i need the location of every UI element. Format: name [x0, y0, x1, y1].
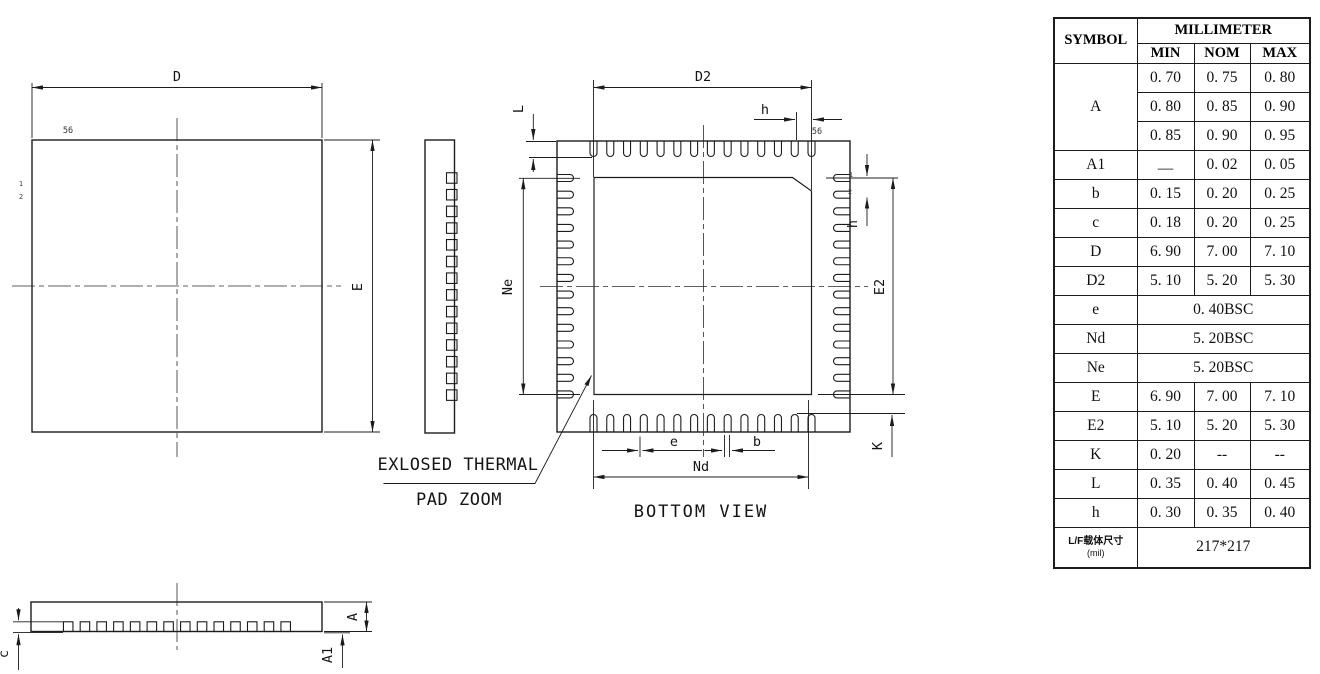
- table-cell: E2: [1054, 411, 1137, 440]
- lead-pad: [447, 206, 458, 217]
- table-cell: 0. 25: [1250, 208, 1310, 237]
- exposed-thermal-pad: [594, 178, 812, 395]
- pad-bottom: [774, 415, 781, 432]
- table-cell: 0. 90: [1194, 121, 1250, 150]
- table-cell: 6. 90: [1137, 382, 1194, 411]
- lead-pad: [447, 323, 458, 334]
- table-cell: c: [1054, 208, 1137, 237]
- table-cell: D: [1054, 237, 1137, 266]
- table-cell: 0. 85: [1194, 92, 1250, 121]
- pad-bottom: [607, 415, 614, 432]
- pad-bottom: [808, 415, 815, 432]
- pad-right: [834, 308, 850, 315]
- dim-label-Ne: Ne: [500, 279, 516, 295]
- table-cell: 0. 20: [1137, 440, 1194, 469]
- table-cell: 5. 10: [1137, 266, 1194, 295]
- table-row: E6. 907. 007. 10: [1054, 382, 1310, 411]
- table-cell: e: [1054, 295, 1137, 324]
- lead-pad: [247, 622, 256, 632]
- table-row: e0. 40BSC: [1054, 295, 1310, 324]
- pad-bottom: [674, 415, 681, 432]
- table-cell: 0. 95: [1250, 121, 1310, 150]
- lead-pad: [447, 356, 458, 367]
- pad-left: [558, 258, 574, 265]
- pad-top: [657, 142, 664, 157]
- pad-top: [774, 142, 781, 157]
- lead-pad: [447, 240, 458, 251]
- table-cell: 7. 00: [1194, 237, 1250, 266]
- pad-right: [834, 324, 850, 331]
- lead-pad: [231, 622, 241, 632]
- dim-label-h-right: h: [845, 220, 861, 228]
- pad-right: [834, 358, 850, 365]
- bottom-view-caption: BOTTOM VIEW: [634, 502, 769, 522]
- callout-text-line1: EXLOSED THERMAL: [377, 455, 538, 475]
- table-cell: --: [1250, 440, 1310, 469]
- table-cell: 0. 02: [1194, 150, 1250, 179]
- dim-label-Nd: Nd: [693, 459, 709, 475]
- pin-1-label: 1: [19, 180, 23, 188]
- pad-top: [741, 142, 748, 157]
- table-cell: 7. 00: [1194, 382, 1250, 411]
- table-cell: 6. 90: [1137, 237, 1194, 266]
- pad-right: [834, 341, 850, 348]
- table-cell: 5. 20: [1194, 266, 1250, 295]
- callout-text-line2: PAD ZOOM: [416, 490, 502, 510]
- table-cell: D2: [1054, 266, 1137, 295]
- table-cell: 0. 80: [1137, 92, 1194, 121]
- lead-pad: [63, 622, 72, 632]
- table-row: K0. 20----: [1054, 440, 1310, 469]
- dim-label-e: e: [670, 434, 678, 450]
- table-cell: 0. 25: [1250, 179, 1310, 208]
- lead-pad: [447, 256, 458, 267]
- pad-bottom: [791, 415, 798, 432]
- pin-2-label: 2: [19, 193, 23, 201]
- table-cell: 5. 20BSC: [1137, 353, 1310, 382]
- table-cell: 0. 40BSC: [1137, 295, 1310, 324]
- table-row: E25. 105. 205. 30: [1054, 411, 1310, 440]
- profile-body-outline: [31, 602, 322, 632]
- lead-pad: [97, 622, 107, 632]
- pad-top: [791, 142, 798, 157]
- table-cell: h: [1054, 498, 1137, 527]
- top-view: D E 56 1 2: [12, 69, 380, 457]
- lead-pad: [447, 223, 458, 234]
- table-cell: Ne: [1054, 353, 1137, 382]
- pad-right: [834, 374, 850, 381]
- pad-top: [724, 142, 731, 157]
- table-cell: K: [1054, 440, 1137, 469]
- dim-label-L: L: [511, 105, 527, 113]
- table-header-nom: NOM: [1194, 43, 1250, 63]
- strip-body-outline: [425, 140, 455, 433]
- pad-bottom: [741, 415, 748, 432]
- table-cell: A: [1054, 63, 1137, 150]
- pad-left: [558, 241, 574, 248]
- lead-pad: [181, 622, 191, 632]
- dim-label-A: A: [345, 613, 361, 621]
- table-header-row: SYMBOL MILLIMETER: [1054, 18, 1310, 43]
- table-row: L0. 350. 400. 45: [1054, 469, 1310, 498]
- pad-left: [558, 291, 574, 298]
- lead-pad: [447, 340, 458, 351]
- dim-label-D2: D2: [695, 69, 711, 85]
- pin-56-label: 56: [63, 126, 73, 136]
- table-cell: 5. 20: [1194, 411, 1250, 440]
- lead-pad: [281, 622, 291, 632]
- table-cell: 0. 40: [1194, 469, 1250, 498]
- pad-left: [558, 358, 574, 365]
- table-row: h0. 300. 350. 40: [1054, 498, 1310, 527]
- pad-right: [834, 274, 850, 281]
- table-cell: —: [1137, 150, 1194, 179]
- pad-right: [834, 208, 850, 215]
- table-cell: 0. 05: [1250, 150, 1310, 179]
- pad-right: [834, 291, 850, 298]
- lead-pad: [130, 622, 140, 632]
- table-cell: 7. 10: [1250, 382, 1310, 411]
- table-cell: 0. 35: [1194, 498, 1250, 527]
- table-cell: 0. 80: [1250, 63, 1310, 92]
- pad-left: [558, 224, 574, 231]
- table-cell: E: [1054, 382, 1137, 411]
- pad-top: [640, 142, 647, 157]
- pad-bottom: [707, 415, 714, 432]
- lead-pad: [447, 290, 458, 301]
- table-header-symbol: SYMBOL: [1054, 18, 1137, 63]
- lead-pad: [447, 189, 458, 200]
- pad-left: [558, 324, 574, 331]
- pad-bottom: [657, 415, 664, 432]
- callout-leader-line: [535, 376, 592, 484]
- table-cell: 0. 90: [1250, 92, 1310, 121]
- dim-label-K: K: [870, 441, 886, 450]
- table-header-max: MAX: [1250, 43, 1310, 63]
- table-cell: L: [1054, 469, 1137, 498]
- pad-top: [707, 142, 714, 157]
- pad-bottom: [758, 415, 765, 432]
- lead-pad: [447, 390, 458, 401]
- package-outline-drawing: D E 56 1 2 D2: [0, 0, 1320, 674]
- table-cell: 7. 10: [1250, 237, 1310, 266]
- table-row: D6. 907. 007. 10: [1054, 237, 1310, 266]
- table-cell: 0. 40: [1250, 498, 1310, 527]
- pad-left: [558, 341, 574, 348]
- lead-pad: [147, 622, 157, 632]
- table-row: Nd5. 20BSC: [1054, 324, 1310, 353]
- dimension-table-body: A0. 700. 750. 800. 800. 850. 900. 850. 9…: [1054, 63, 1310, 568]
- dimension-table: SYMBOL MILLIMETER MIN NOM MAX A0. 700. 7…: [1053, 17, 1311, 569]
- pad-top: [624, 142, 631, 157]
- lead-pad: [114, 622, 124, 632]
- table-cell: L/F载体尺寸(mil): [1054, 527, 1137, 568]
- pad-top: [674, 142, 681, 157]
- table-cell: --: [1194, 440, 1250, 469]
- pad-bottom: [624, 415, 631, 432]
- pad-left: [558, 374, 574, 381]
- dim-label-A1: A1: [320, 647, 336, 663]
- pad-bottom: [724, 415, 731, 432]
- table-header-min: MIN: [1137, 43, 1194, 63]
- dim-label-h-top: h: [761, 102, 769, 118]
- lead-pad: [447, 273, 458, 284]
- table-cell: 0. 20: [1194, 179, 1250, 208]
- drawing-canvas: D E 56 1 2 D2: [0, 0, 1040, 674]
- pad-top: [607, 142, 614, 157]
- table-row: c0. 180. 200. 25: [1054, 208, 1310, 237]
- lead-pad: [164, 622, 174, 632]
- pad-bottom: [640, 415, 647, 432]
- table-cell: 0. 30: [1137, 498, 1194, 527]
- table-cell: Nd: [1054, 324, 1137, 353]
- table-cell: 5. 30: [1250, 411, 1310, 440]
- pad-right: [834, 241, 850, 248]
- thermal-pad-callout: EXLOSED THERMAL PAD ZOOM: [377, 376, 591, 511]
- table-cell: 5. 20BSC: [1137, 324, 1310, 353]
- dim-label-E: E: [350, 283, 366, 291]
- table-cell: A1: [1054, 150, 1137, 179]
- lead-pad: [214, 622, 224, 632]
- side-profile-view: A A1 c: [0, 583, 372, 670]
- pad-left: [558, 208, 574, 215]
- pad-left: [558, 191, 574, 198]
- table-cell: b: [1054, 179, 1137, 208]
- pin-56-label: 56: [812, 127, 822, 137]
- table-cell: 217*217: [1137, 527, 1310, 568]
- lead-pad: [80, 622, 90, 632]
- pad-top: [691, 142, 698, 157]
- table-cell: 0. 18: [1137, 208, 1194, 237]
- pad-top: [758, 142, 765, 157]
- bottom-view: D2 h 56 L Ne E2 h: [500, 69, 905, 522]
- table-cell: 0. 70: [1137, 63, 1194, 92]
- table-cell: 5. 10: [1137, 411, 1194, 440]
- table-row: Ne5. 20BSC: [1054, 353, 1310, 382]
- table-row: A1—0. 020. 05: [1054, 150, 1310, 179]
- table-cell: 0. 15: [1137, 179, 1194, 208]
- pad-bottom: [691, 415, 698, 432]
- dim-label-c: c: [0, 650, 12, 658]
- lead-pad: [197, 622, 207, 632]
- pin-1-label: 1: [849, 171, 853, 179]
- table-cell: 0. 45: [1250, 469, 1310, 498]
- table-cell: 0. 85: [1137, 121, 1194, 150]
- table-cell: 0. 35: [1137, 469, 1194, 498]
- table-row: D25. 105. 205. 30: [1054, 266, 1310, 295]
- strip-lead-pads: [447, 173, 458, 401]
- table-cell: 0. 20: [1194, 208, 1250, 237]
- lead-pad: [447, 173, 458, 184]
- pad-left: [558, 274, 574, 281]
- table-row: A0. 700. 750. 80: [1054, 63, 1310, 92]
- side-strip-view: [425, 140, 457, 433]
- lead-pad: [447, 306, 458, 317]
- table-row: b0. 150. 200. 25: [1054, 179, 1310, 208]
- lead-pad: [447, 373, 458, 384]
- table-header-unit: MILLIMETER: [1137, 18, 1310, 43]
- dim-label-D: D: [173, 69, 181, 85]
- pad-right: [834, 258, 850, 265]
- pin-2-label: 2: [848, 188, 852, 196]
- table-cell: 5. 30: [1250, 266, 1310, 295]
- dim-label-b: b: [753, 434, 761, 450]
- table-row: L/F载体尺寸(mil)217*217: [1054, 527, 1310, 568]
- lead-pad: [264, 622, 274, 632]
- dim-label-E2: E2: [872, 279, 888, 295]
- table-cell: 0. 75: [1194, 63, 1250, 92]
- pad-left: [558, 308, 574, 315]
